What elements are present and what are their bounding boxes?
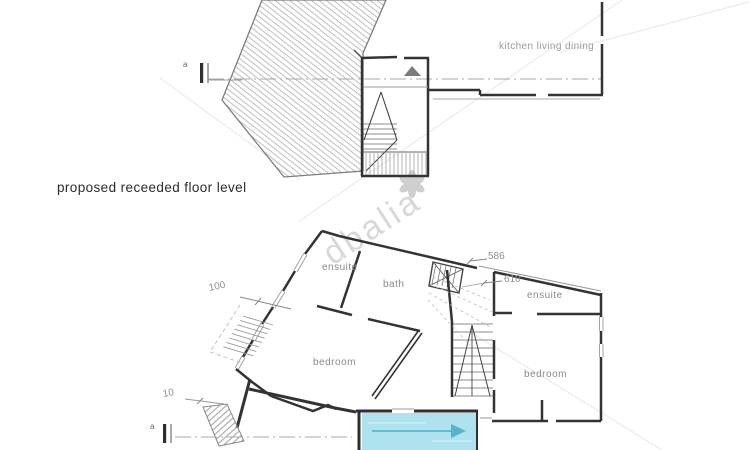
dimension-leaders — [185, 258, 502, 404]
lower-section-marker — [163, 424, 352, 443]
room-label-kitchen-living-dining: kitchen living dining — [499, 41, 594, 52]
room-label-bath: bath — [383, 279, 404, 290]
plan-caption: proposed receeded floor level — [57, 180, 246, 195]
dimension-10: 10 — [162, 387, 175, 400]
lower-section-marker-letter: a — [150, 422, 154, 431]
room-label-ensuite-right: ensuite — [527, 290, 563, 301]
room-label-ensuite-left: ensuite — [322, 262, 358, 273]
lower-left-wall — [235, 231, 322, 396]
stair-core — [428, 270, 493, 397]
upper-stair-block — [354, 50, 429, 176]
floorplan-canvas: dbalia — [0, 0, 750, 450]
solid-triangle-icon — [404, 66, 421, 76]
upper-section-marker-letter: a — [183, 60, 187, 69]
dimension-610: 610 — [504, 274, 521, 285]
lower-internal-walls — [237, 251, 422, 428]
room-label-bedroom-right: bedroom — [524, 369, 567, 380]
plan-linework — [0, 0, 750, 450]
external-stair — [210, 305, 273, 363]
pool — [356, 409, 478, 450]
lower-top-walls — [322, 231, 601, 295]
dimension-586: 586 — [488, 251, 505, 262]
room-label-bedroom-left: bedroom — [313, 357, 356, 368]
